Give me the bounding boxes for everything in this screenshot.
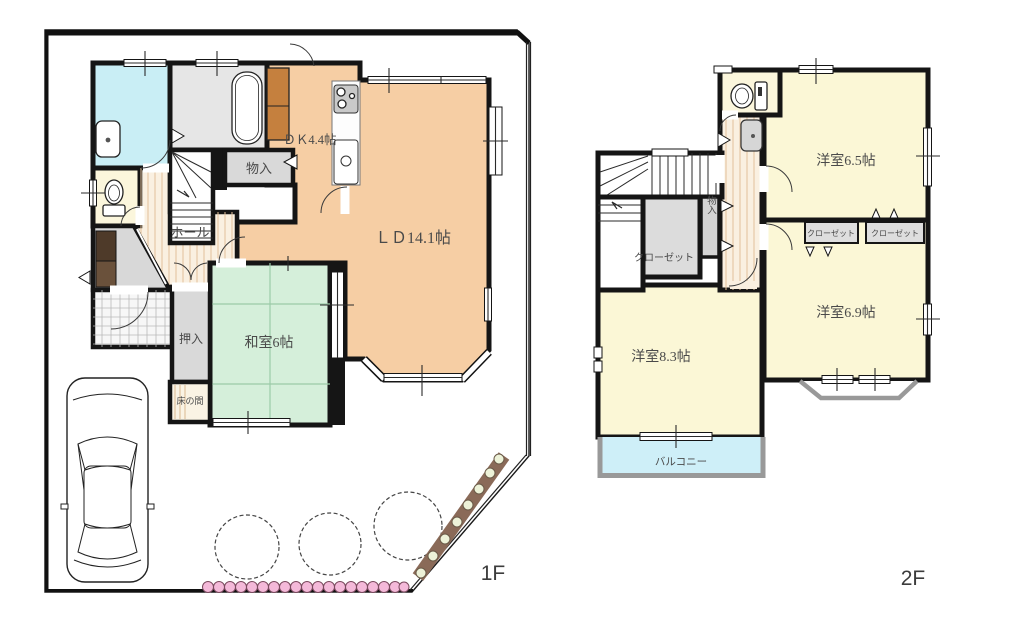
stove-burner-3 [338,100,346,108]
dk-label: ＤＫ4.4帖 [283,132,336,147]
toilet-tank-1f [103,205,125,216]
tree-2 [299,513,361,575]
car-mirror-right [147,504,154,509]
floor2-label: 2F [901,567,926,590]
hall-label: ホール [170,225,209,240]
west83-label: 洋室8.3帖 [631,348,691,365]
washbasin-drain [751,134,755,138]
toilet-handle-2f [758,87,762,96]
closet-2f [643,197,700,277]
closet-right-label: クローゼット [871,228,919,238]
exterior-vent-mark [79,271,90,284]
floor1-label: 1F [481,562,506,585]
shoe-cabinet-lower [96,261,116,287]
stairs-2f-landing [598,197,643,290]
tree-1 [215,515,279,579]
sink [334,140,358,184]
kitchen-cabinet [267,68,289,140]
vanity-faucet [106,138,111,143]
stove-burner-2 [350,94,355,99]
closet-left-label: クローゼット [807,228,855,238]
boundary-corner [517,32,529,43]
floor2-plan: 洋室6.5帖 洋室6.9帖 洋室8.3帖 クローゼット クローゼット クローゼッ… [594,58,940,590]
floorplan-canvas: ＤＫ4.4帖 ＬＤ14.1帖 物入 ホール 押入 和室6帖 床の間 [0,0,1023,633]
floorplan-page: ＤＫ4.4帖 ＬＤ14.1帖 物入 ホール 押入 和室6帖 床の間 [0,0,1023,633]
storage-1f-label: 物入 [246,161,272,176]
oshiire-label: 押入 [179,332,203,346]
balcony-label: バルコニー [655,456,707,468]
west-room-65 [764,70,928,220]
car-mirror-left [61,504,68,509]
washitsu-label: 和室6帖 [245,334,294,351]
stove-burner-1 [337,88,345,96]
car [61,378,154,582]
west69-label: 洋室6.9帖 [816,304,876,321]
floor1-plan: ＤＫ4.4帖 ＬＤ14.1帖 物入 ホール 押入 和室6帖 床の間 [79,44,508,434]
shoe-cabinet-upper [96,231,116,261]
storage-2f-label: 物入 [705,195,717,215]
west65-label: 洋室6.5帖 [816,152,876,169]
toilet-bowl-1f [105,180,123,204]
ld-label: ＬＤ14.1帖 [375,229,451,247]
tokonoma-label: 床の間 [176,395,203,406]
closet-2f-label: クローゼット [634,252,694,264]
